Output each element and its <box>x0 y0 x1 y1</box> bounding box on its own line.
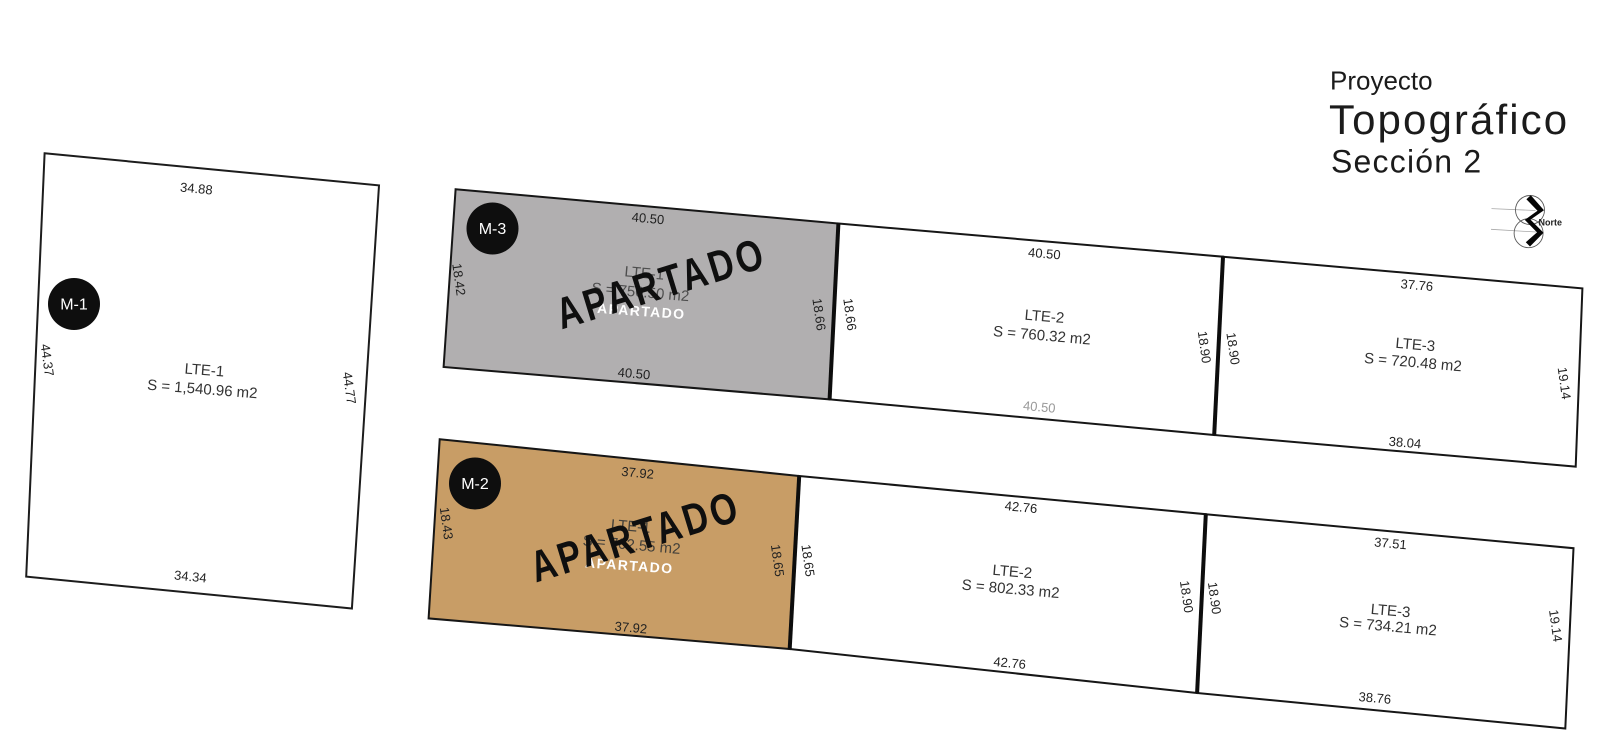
svg-text:LTE-2: LTE-2 <box>1024 307 1065 327</box>
svg-text:34.34: 34.34 <box>174 567 208 585</box>
svg-text:M-3: M-3 <box>479 221 507 238</box>
svg-text:37.51: 37.51 <box>1374 534 1408 552</box>
svg-text:M-2: M-2 <box>461 476 489 493</box>
svg-text:37.92: 37.92 <box>614 618 648 636</box>
svg-text:Proyecto: Proyecto <box>1330 66 1433 96</box>
svg-text:38.04: 38.04 <box>1388 434 1422 452</box>
svg-text:40.50: 40.50 <box>1022 398 1056 416</box>
svg-text:Topográfico: Topográfico <box>1329 96 1569 143</box>
svg-text:40.50: 40.50 <box>1028 245 1062 263</box>
svg-text:Norte: Norte <box>1539 218 1563 228</box>
svg-text:Sección 2: Sección 2 <box>1331 144 1482 180</box>
svg-text:40.50: 40.50 <box>617 365 651 383</box>
svg-text:42.76: 42.76 <box>993 654 1027 672</box>
svg-text:38.76: 38.76 <box>1358 689 1392 707</box>
svg-text:42.76: 42.76 <box>1004 498 1038 516</box>
svg-text:37.92: 37.92 <box>621 464 655 482</box>
svg-text:LTE-1: LTE-1 <box>184 360 225 380</box>
svg-text:34.88: 34.88 <box>180 180 214 198</box>
svg-text:M-1: M-1 <box>60 297 88 314</box>
svg-text:37.76: 37.76 <box>1400 276 1434 294</box>
svg-text:40.50: 40.50 <box>631 209 665 227</box>
